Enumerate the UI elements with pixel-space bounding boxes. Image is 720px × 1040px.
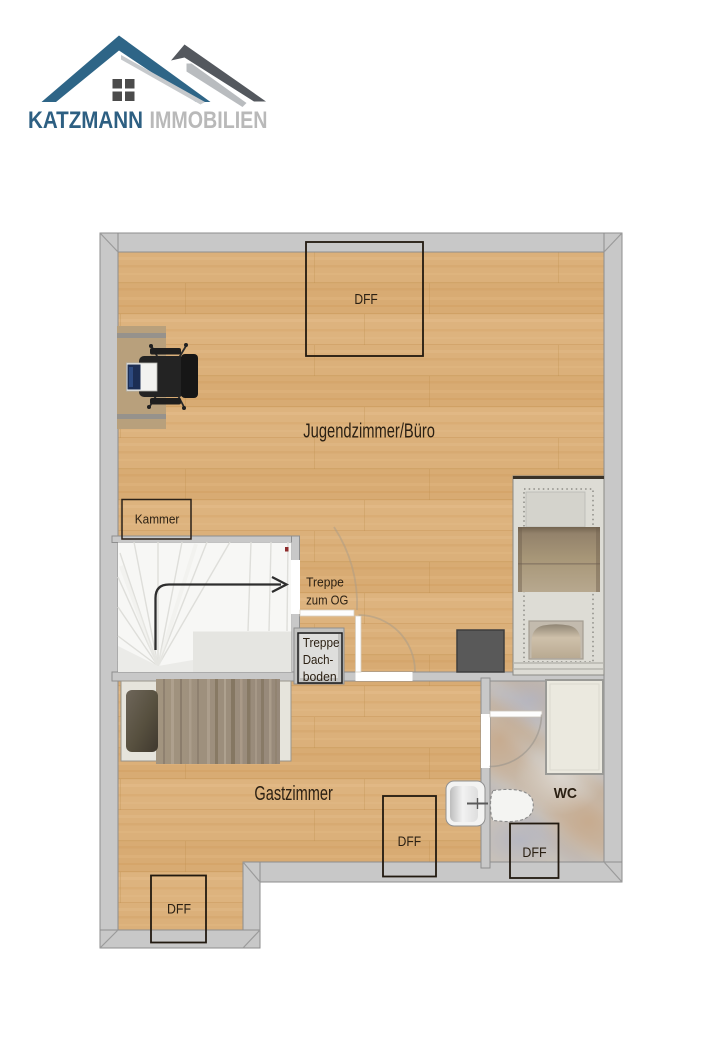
svg-text:boden: boden bbox=[303, 670, 337, 684]
svg-text:DFF: DFF bbox=[522, 844, 546, 860]
svg-text:Treppe: Treppe bbox=[303, 636, 340, 650]
svg-text:DFF: DFF bbox=[354, 291, 377, 308]
svg-text:IMMOBILIEN: IMMOBILIEN bbox=[150, 107, 268, 134]
svg-text:Gastzimmer: Gastzimmer bbox=[254, 783, 333, 805]
svg-text:DFF: DFF bbox=[398, 833, 422, 849]
svg-text:zum OG: zum OG bbox=[306, 593, 348, 607]
svg-text:KATZMANN: KATZMANN bbox=[28, 107, 143, 134]
svg-text:Kammer: Kammer bbox=[135, 513, 180, 527]
svg-text:WC: WC bbox=[554, 785, 577, 802]
svg-text:Dach-: Dach- bbox=[303, 653, 334, 667]
svg-text:Jugendzimmer/Büro: Jugendzimmer/Büro bbox=[303, 421, 435, 443]
svg-text:Treppe: Treppe bbox=[306, 575, 344, 589]
svg-text:DFF: DFF bbox=[167, 901, 191, 917]
